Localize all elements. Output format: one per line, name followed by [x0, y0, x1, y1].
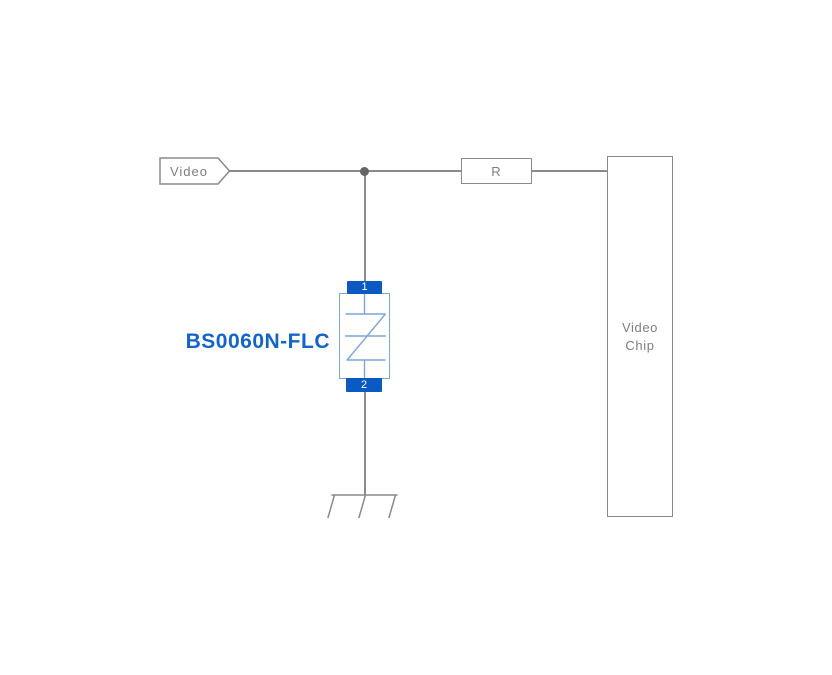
- wire-tvs-to-ground: [364, 391, 366, 495]
- ground-symbol: [325, 489, 403, 522]
- wire-junction-to-tvs: [364, 172, 366, 281]
- net-label: Video: [160, 158, 218, 184]
- resistor-box: R: [461, 158, 532, 184]
- resistor-label: R: [491, 164, 501, 179]
- tvs-diode-symbol: [339, 293, 390, 379]
- chip-label-line2: Chip: [625, 337, 654, 355]
- ground-hash-2: [359, 495, 366, 518]
- tvs-pin-1-label: 1: [361, 282, 367, 293]
- tvs-symbol-diagonal: [348, 315, 386, 360]
- ground-hash-3: [389, 495, 396, 518]
- tvs-pin-1: 1: [347, 281, 382, 294]
- chip-label-line1: Video: [622, 319, 658, 337]
- junction-dot: [360, 167, 369, 176]
- ground-hash-1: [328, 495, 335, 518]
- tvs-pin-2: 2: [346, 378, 382, 392]
- video-chip-box: Video Chip: [607, 156, 673, 517]
- circuit-diagram: Video R Video Chip 1 2 BS0060N-FLC: [0, 0, 832, 675]
- tvs-pin-2-label: 2: [361, 380, 367, 391]
- tvs-part-number: BS0060N-FLC: [186, 330, 330, 354]
- wire-resistor-to-chip: [531, 170, 608, 172]
- wire-net-to-resistor: [228, 170, 461, 172]
